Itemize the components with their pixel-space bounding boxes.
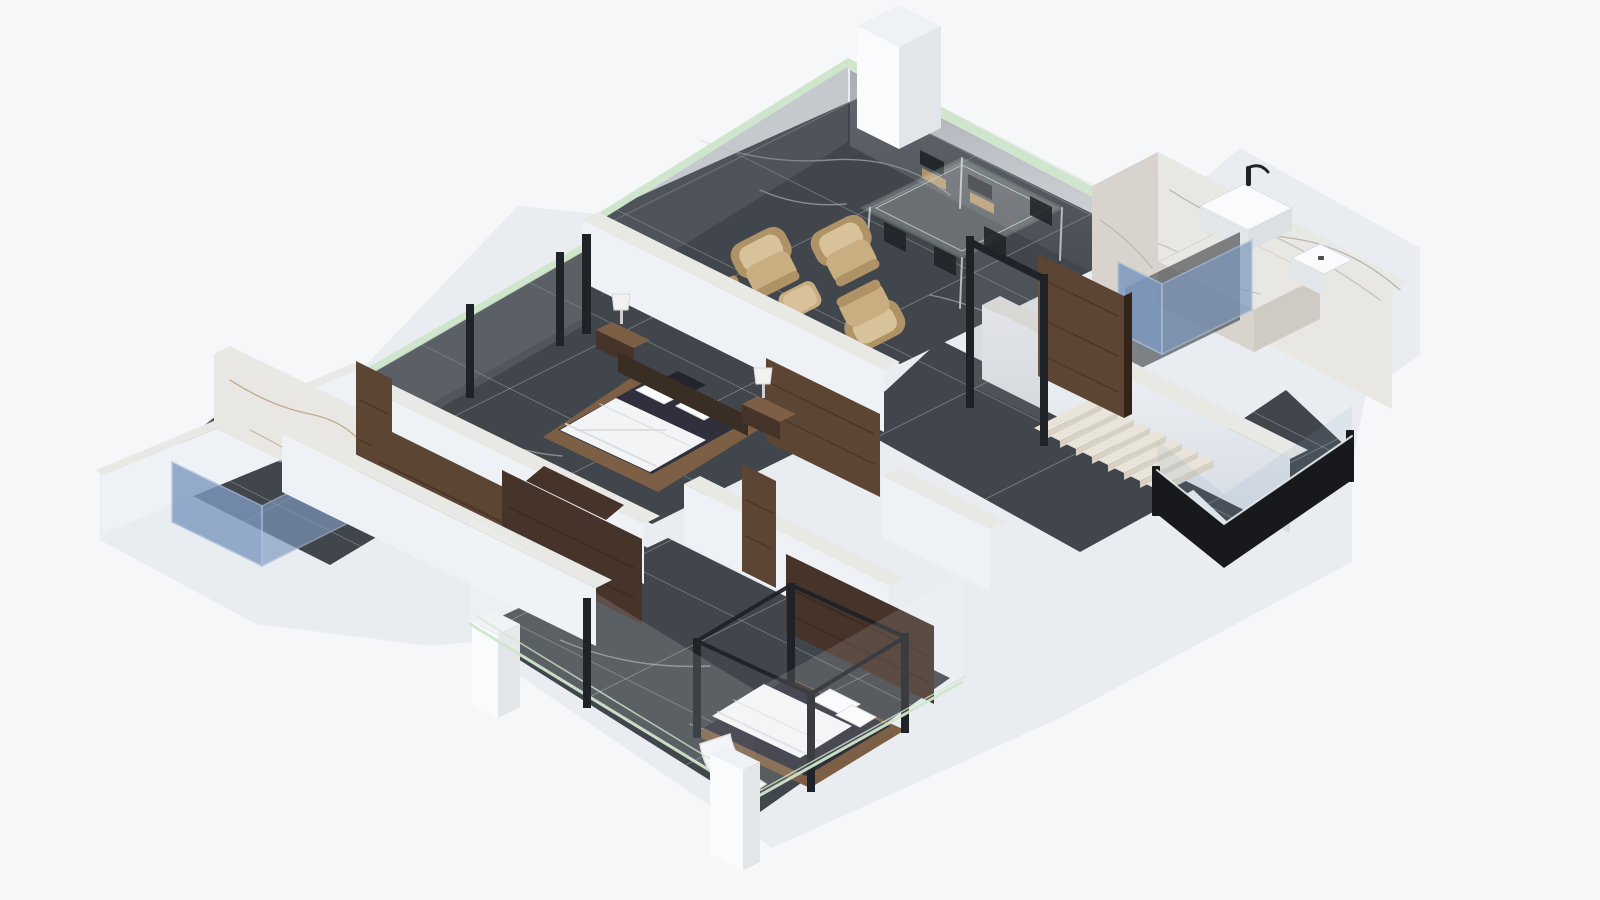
balcony-rail-post: [1152, 466, 1160, 516]
bed2-glass-post: [583, 598, 591, 708]
door-bedroom2: [742, 464, 776, 588]
column-right-face: [899, 26, 941, 149]
glass-door-frame: [966, 236, 974, 408]
floorplan-stage: [0, 0, 1600, 900]
floorplan-render: [0, 0, 1600, 900]
corner-column-side: [743, 762, 760, 870]
column-left-face: [857, 26, 899, 149]
bed2-post: [787, 583, 795, 683]
lamp-shade: [612, 294, 630, 310]
lamp-shade: [754, 368, 772, 384]
glass-door-frame: [1040, 274, 1048, 446]
corner-column-front: [710, 754, 743, 870]
master-glass-post: [582, 234, 591, 334]
master-glass-post: [556, 252, 564, 346]
toilet-flush-button: [1318, 256, 1324, 260]
door-bathroom-right-edge: [1124, 292, 1132, 418]
master-glass-post: [466, 304, 474, 398]
